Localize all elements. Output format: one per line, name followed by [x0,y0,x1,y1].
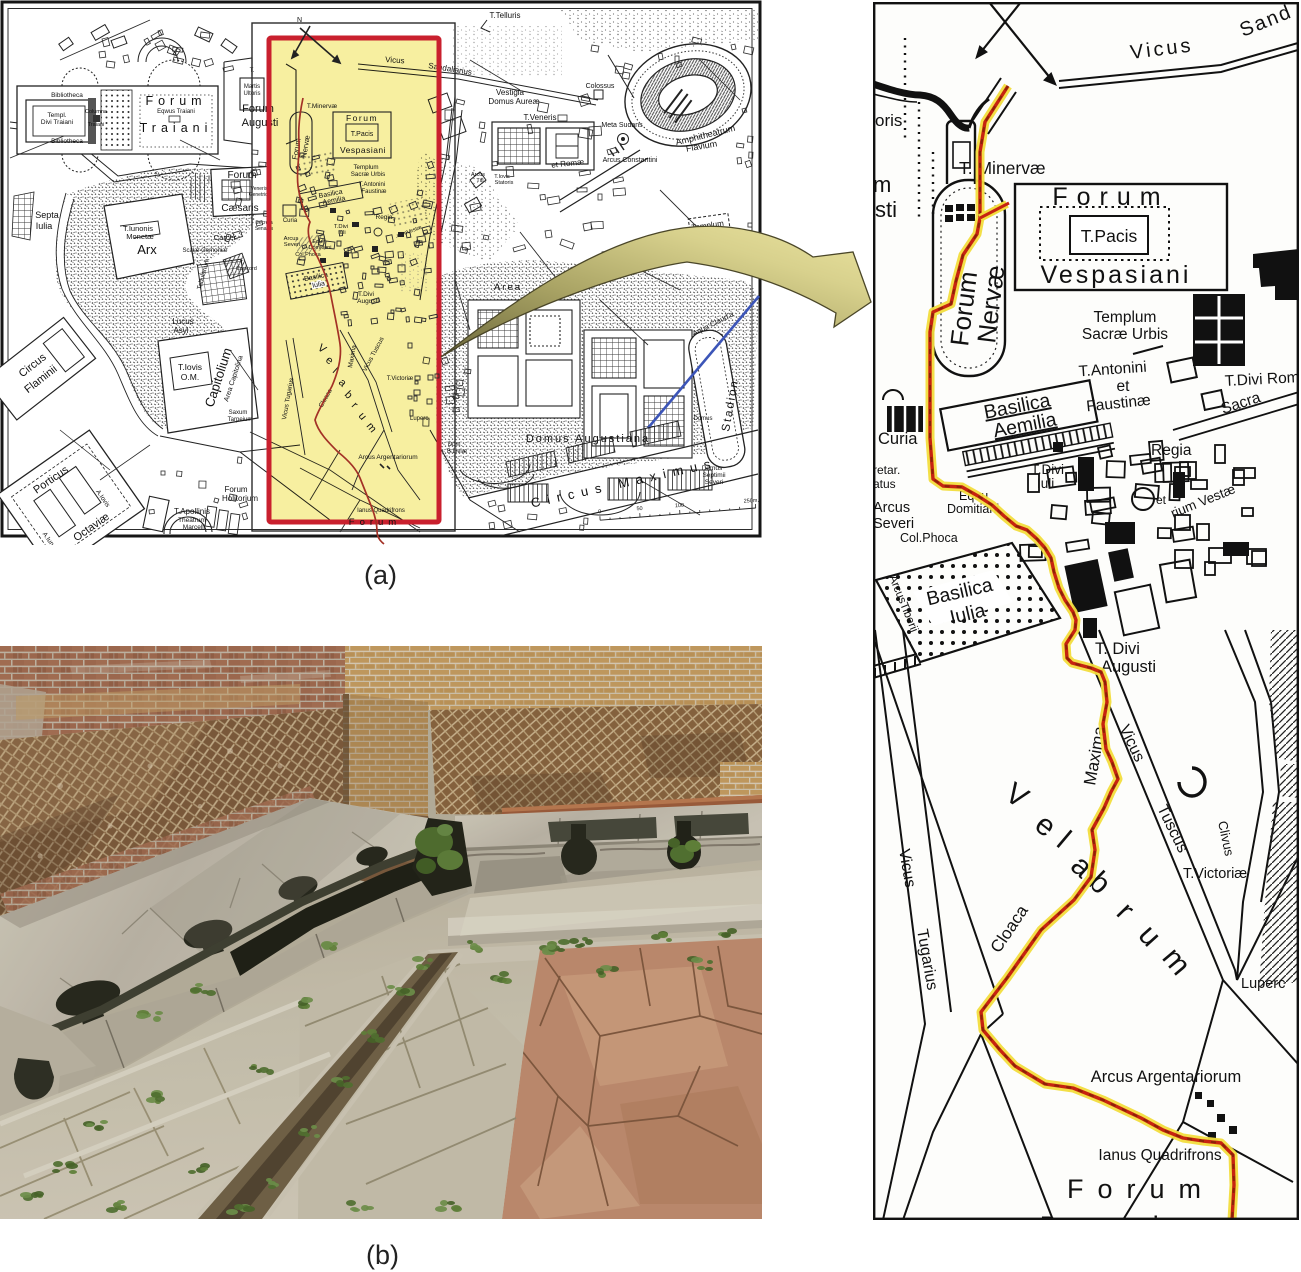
svg-text:Arcus: Arcus [873,500,910,516]
svg-text:Curia: Curia [878,430,918,448]
svg-text:Col.Phoca: Col.Phoca [900,531,958,545]
svg-text:Arcus Argentariorum: Arcus Argentariorum [1091,1068,1241,1086]
svg-text:Tarpeium: Tarpeium [228,417,253,423]
svg-text:Scalæ Gemoniæ: Scalæ Gemoniæ [182,248,228,254]
svg-text:Vestigia: Vestigia [496,88,525,97]
svg-text:Traiani: Traiani [88,122,105,128]
svg-text:retar.: retar. [873,463,900,477]
svg-text:Domus: Domus [693,416,712,422]
svg-text:Meta Sudans: Meta Sudans [601,122,643,129]
svg-text:50: 50 [636,506,642,512]
svg-text:B.Liviæ: B.Liviæ [447,449,468,455]
svg-text:T.Divi: T.Divi [358,291,374,298]
svg-text:Asyl: Asyl [173,326,188,335]
svg-text:250m.: 250m. [744,498,760,505]
svg-text:Columna: Columna [85,109,108,115]
svg-text:T. Minervæ: T. Minervæ [959,158,1046,178]
svg-text:Marcelli: Marcelli [183,524,205,531]
svg-text:Vespasiani: Vespasiani [340,145,386,155]
svg-text:O.M.: O.M. [181,372,199,382]
svg-text:oris: oris [875,111,902,130]
svg-text:Regia: Regia [1151,442,1192,459]
svg-text:Arx: Arx [137,242,157,257]
svg-text:Colossus: Colossus [586,83,615,90]
svg-text:Faustinæ: Faustinæ [361,189,387,195]
svg-text:m: m [873,172,891,197]
svg-text:T.Pacis: T.Pacis [351,131,374,138]
svg-text:Curia: Curia [283,218,298,224]
svg-text:Sacræ Urbis: Sacræ Urbis [351,171,385,178]
svg-text:Traiani: Traiani [140,121,213,135]
svg-text:Titi: Titi [476,178,483,184]
svg-text:Monetæ: Monetæ [126,232,154,241]
svg-text:Templ.: Templ. [47,112,66,119]
svg-text:Arcus Constantini: Arcus Constantini [603,157,658,164]
svg-text:Forum: Forum [1052,183,1169,211]
svg-text:Vespasiani: Vespasiani [1041,261,1192,289]
svg-text:Holitorium: Holitorium [222,494,258,503]
svg-text:Arcus Argentariorum: Arcus Argentariorum [358,454,417,461]
svg-text:Statoris: Statoris [495,180,514,186]
svg-text:Sacræ Urbis: Sacræ Urbis [1082,326,1168,343]
svg-text:0: 0 [598,509,601,515]
svg-text:Septa: Septa [35,210,59,220]
svg-text:Forum: Forum [346,113,378,123]
svg-text:T.Victoriæ: T.Victoriæ [1183,866,1247,882]
svg-text:Theatrum: Theatrum [178,517,206,524]
svg-text:Saxum: Saxum [229,410,248,416]
svg-text:Lucus: Lucus [172,317,193,326]
svg-text:Luperc: Luperc [1241,976,1285,992]
svg-text:Eqwus Traiani: Eqwus Traiani [157,109,195,115]
svg-text:sti: sti [875,197,897,222]
svg-text:100: 100 [675,503,684,509]
svg-text:T.Veneris: T.Veneris [524,113,557,122]
svg-text:T.Iovis: T.Iovis [178,362,202,372]
svg-text:N: N [297,17,302,24]
svg-text:T.Antonini: T.Antonini [359,182,385,188]
svg-text:Templum: Templum [353,164,378,171]
svg-text:Ianus Quadrifrons: Ianus Quadrifrons [1098,1147,1221,1164]
svg-text:Forum: Forum [145,94,206,108]
svg-text:et: et [1117,378,1131,395]
svg-text:Templum: Templum [1094,309,1157,326]
svg-text:Forum: Forum [1067,1174,1215,1204]
svg-text:Concord: Concord [236,266,257,272]
svg-text:Severi: Severi [873,516,914,532]
svg-text:Ianus Quadrifrons: Ianus Quadrifrons [357,508,405,514]
svg-text:Luperc.: Luperc. [410,416,430,422]
svg-text:T.Pacis: T.Pacis [1081,226,1138,246]
svg-text:T.Victoriæ: T.Victoriæ [387,376,414,382]
svg-text:Iulia: Iulia [36,221,53,231]
svg-text:T. Divi: T. Divi [1095,640,1140,658]
svg-text:Bibliotheca: Bibliotheca [51,92,83,99]
svg-text:Domus Aureæ: Domus Aureæ [488,97,539,106]
svg-text:T.Telluris: T.Telluris [489,11,520,20]
svg-text:atus: atus [873,477,896,491]
svg-text:Cæsaris: Cæsaris [221,203,258,214]
svg-text:Forum: Forum [224,485,247,494]
svg-text:Divi Traiani: Divi Traiani [41,119,73,126]
svg-text:T.Minervæ: T.Minervæ [307,103,338,110]
svg-text:Augusti: Augusti [1101,658,1156,676]
